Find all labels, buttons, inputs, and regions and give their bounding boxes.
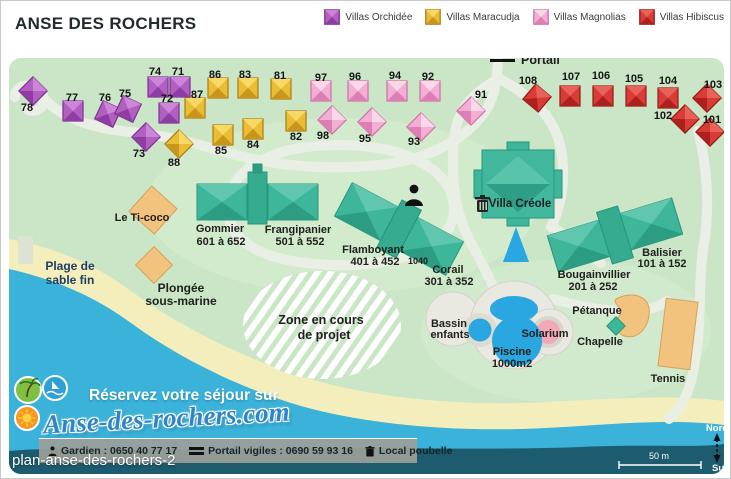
villa-97 bbox=[311, 81, 331, 101]
villa-83 bbox=[238, 78, 258, 98]
label-tennis: Tennis bbox=[651, 373, 686, 385]
legend: Villas OrchidéeVillas MaracudjaVillas Ma… bbox=[324, 9, 724, 25]
villa-number-73: 73 bbox=[133, 148, 145, 160]
footer-item: Portail vigiles : 0690 59 93 16 bbox=[189, 445, 353, 457]
plan-page: ANSE DES ROCHERS Villas OrchidéeVillas M… bbox=[0, 0, 731, 479]
villa-number-76: 76 bbox=[99, 92, 111, 104]
footer-item-text: Local poubelle bbox=[379, 445, 453, 457]
branding-logo: Réservez votre séjour sur Anse-des-roche… bbox=[13, 375, 323, 439]
villa-number-102: 102 bbox=[654, 110, 672, 122]
villa-number-101: 101 bbox=[703, 114, 721, 126]
villa-number-85: 85 bbox=[215, 145, 227, 157]
trash-area-icon bbox=[475, 195, 490, 212]
villa-105 bbox=[626, 86, 646, 106]
legend-item-magnolias: Villas Magnolias bbox=[533, 9, 626, 25]
villa-number-96: 96 bbox=[349, 71, 361, 83]
villa-number-74: 74 bbox=[149, 66, 162, 78]
villa-number-88: 88 bbox=[168, 157, 180, 169]
villa-number-78: 78 bbox=[21, 102, 33, 114]
building-villa-creole bbox=[474, 142, 562, 226]
footer-item: Local poubelle bbox=[365, 445, 453, 457]
label-plage-1: Plage de bbox=[45, 259, 95, 273]
portail-label: Portail bbox=[521, 58, 560, 67]
villa-86 bbox=[208, 78, 228, 98]
label-frangipanier: Frangipanier bbox=[265, 224, 332, 236]
pier bbox=[18, 236, 33, 264]
villa-number-93: 93 bbox=[408, 136, 420, 148]
villa-number-77: 77 bbox=[66, 92, 78, 104]
range-bougainvillier: 201 à 252 bbox=[569, 281, 618, 293]
villa-82 bbox=[286, 111, 306, 131]
villa-number-104: 104 bbox=[659, 75, 678, 87]
portal-icon bbox=[189, 447, 204, 455]
footer-item-text: Portail vigiles : 0690 59 93 16 bbox=[208, 445, 353, 457]
label-chapelle: Chapelle bbox=[577, 336, 623, 348]
villa-85 bbox=[213, 125, 233, 145]
scale-label: 50 m bbox=[649, 451, 669, 461]
villa-number-97: 97 bbox=[315, 72, 327, 84]
page-title: ANSE DES ROCHERS bbox=[15, 14, 196, 34]
legend-item-orchidee: Villas Orchidée bbox=[324, 9, 412, 25]
label-villa-creole: Villa Créole bbox=[489, 198, 551, 210]
villa-number-92: 92 bbox=[422, 71, 434, 83]
branding-site: Anse-des-rochers.com bbox=[42, 397, 290, 441]
label-bougainvillier: Bougainvillier bbox=[558, 269, 631, 281]
label-bassin-2: enfants bbox=[430, 329, 469, 341]
villa-number-91: 91 bbox=[475, 89, 487, 101]
legend-item-maracudja: Villas Maracudja bbox=[425, 9, 519, 25]
label-1040: 1040 bbox=[408, 256, 428, 266]
range-gommier: 601 à 652 bbox=[197, 236, 246, 248]
label-plongee-2: sous-marine bbox=[145, 294, 217, 308]
range-flamboyant: 401 à 452 bbox=[351, 256, 400, 268]
villa-104 bbox=[658, 88, 678, 108]
compass-south-label: Sud bbox=[712, 463, 724, 474]
legend-swatch-magnolias bbox=[533, 9, 549, 25]
range-corail: 301 à 352 bbox=[425, 276, 474, 288]
legend-label: Villas Magnolias bbox=[554, 12, 626, 23]
villa-number-106: 106 bbox=[592, 70, 610, 82]
label-solarium: Solarium bbox=[521, 328, 568, 340]
label-piscine-1: Piscine bbox=[493, 346, 532, 358]
header: ANSE DES ROCHERS Villas OrchidéeVillas M… bbox=[1, 1, 730, 58]
label-piscine-2: 1000m2 bbox=[492, 358, 532, 370]
villa-number-75: 75 bbox=[119, 88, 131, 100]
villa-number-86: 86 bbox=[209, 69, 221, 81]
villa-number-83: 83 bbox=[239, 69, 251, 81]
villa-72 bbox=[159, 103, 179, 123]
villa-number-71: 71 bbox=[172, 66, 184, 78]
range-balisier: 101 à 152 bbox=[638, 258, 687, 270]
legend-label: Villas Hibiscus bbox=[660, 12, 724, 23]
label-le-ti-coco: Le Ti-coco bbox=[115, 212, 170, 224]
bassin-enfants-pool bbox=[469, 319, 492, 342]
villa-number-103: 103 bbox=[704, 79, 722, 91]
villa-number-72: 72 bbox=[161, 93, 173, 105]
legend-swatch-maracudja bbox=[425, 9, 441, 25]
legend-label: Villas Orchidée bbox=[345, 12, 412, 23]
villa-number-95: 95 bbox=[359, 133, 371, 145]
villa-number-82: 82 bbox=[290, 131, 302, 143]
label-zone-1: Zone en cours bbox=[278, 313, 363, 327]
villa-number-84: 84 bbox=[247, 139, 260, 151]
villa-106 bbox=[593, 86, 613, 106]
villa-92 bbox=[420, 81, 440, 101]
villa-number-105: 105 bbox=[625, 73, 643, 85]
villa-94 bbox=[387, 81, 407, 101]
villa-number-81: 81 bbox=[274, 70, 286, 82]
villa-77 bbox=[63, 101, 83, 121]
image-caption: plan-anse-des-rochers-2 bbox=[12, 452, 175, 469]
legend-swatch-hibiscus bbox=[639, 9, 655, 25]
label-zone-2: de projet bbox=[298, 328, 352, 342]
villa-87 bbox=[185, 98, 205, 118]
trash-icon bbox=[365, 446, 375, 457]
villa-81 bbox=[271, 79, 291, 99]
villa-84 bbox=[243, 119, 263, 139]
label-plongee-1: Plongée bbox=[158, 281, 205, 295]
legend-label: Villas Maracudja bbox=[446, 12, 519, 23]
label-petanque: Pétanque bbox=[572, 305, 622, 317]
villa-number-108: 108 bbox=[519, 75, 537, 87]
label-plage-2: sable fin bbox=[46, 273, 95, 287]
range-frangipanier: 501 à 552 bbox=[276, 236, 325, 248]
label-flamboyant: Flamboyant bbox=[342, 244, 404, 256]
villa-96 bbox=[348, 81, 368, 101]
villa-107 bbox=[560, 86, 580, 106]
villa-number-94: 94 bbox=[389, 70, 402, 82]
label-gommier: Gommier bbox=[196, 223, 245, 235]
villa-number-87: 87 bbox=[191, 89, 203, 101]
villa-number-107: 107 bbox=[562, 71, 580, 83]
label-corail: Corail bbox=[432, 264, 463, 276]
compass-north-label: Nord bbox=[706, 423, 724, 434]
villa-number-98: 98 bbox=[317, 130, 329, 142]
legend-item-hibiscus: Villas Hibiscus bbox=[639, 9, 724, 25]
legend-swatch-orchidee bbox=[324, 9, 340, 25]
